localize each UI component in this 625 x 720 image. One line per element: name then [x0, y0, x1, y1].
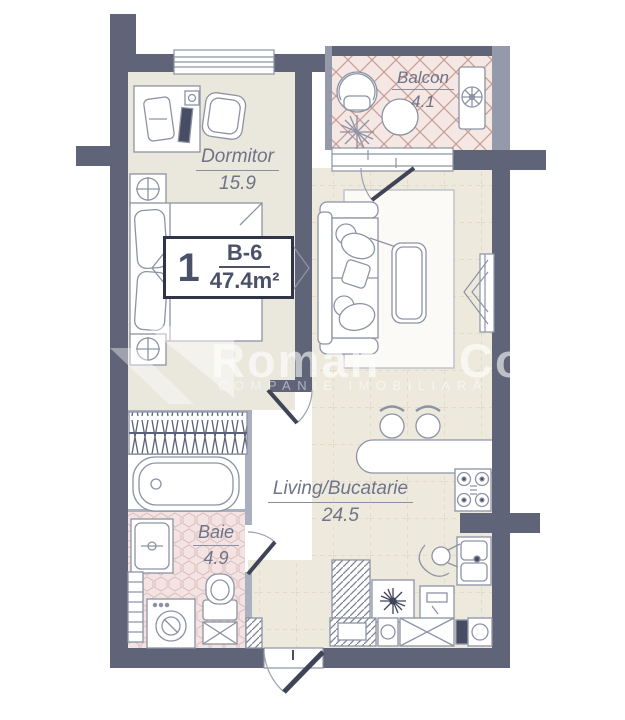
coffee-table	[392, 243, 426, 323]
washing-machine	[147, 599, 195, 648]
window-balcony-sill	[332, 148, 453, 171]
room-name: Baie	[193, 522, 239, 546]
room-name: Balcon	[392, 68, 454, 90]
bar-counter	[357, 440, 492, 473]
appliance-box	[420, 586, 454, 620]
wall-bottom-right	[323, 648, 510, 668]
unit-area: 47.4m²	[210, 268, 280, 294]
wardrobe	[129, 412, 247, 454]
room-area: 15.9	[185, 173, 290, 196]
room-label-balcon: Balcon 4.1	[378, 68, 468, 113]
room-label-dormitor: Dormitor 15.9	[185, 146, 290, 196]
wall-balcony-top	[332, 46, 492, 56]
towel-radiator	[128, 572, 143, 642]
wall-right-tab-low	[460, 513, 540, 533]
wall-bedroom-cap	[270, 380, 312, 392]
unit-code: B-6	[219, 241, 270, 268]
wall-top-right	[274, 54, 332, 72]
room-area: 24.5	[258, 505, 423, 528]
nightstand-bottom	[130, 334, 166, 365]
wall-left	[110, 54, 128, 666]
floor-plan: Dormitor 15.9 Balcon 4.1 Living/Bucatari…	[0, 0, 625, 720]
nightstand-top	[130, 174, 166, 205]
room-label-living: Living/Bucatarie 24.5	[258, 478, 423, 528]
desk-chair	[201, 91, 247, 140]
hall-closet	[332, 560, 370, 622]
bath-sink	[131, 519, 173, 573]
wall-bottom-left	[110, 648, 264, 668]
room-area: 4.1	[378, 92, 468, 112]
balcony-chair	[337, 72, 377, 112]
room-name: Living/Bucatarie	[268, 478, 413, 503]
floor-plan-drawing	[0, 0, 625, 720]
wall-balcony-left	[325, 46, 332, 150]
unit-count: 1	[178, 248, 200, 288]
stove	[455, 469, 491, 511]
room-name: Dormitor	[196, 146, 279, 171]
balcony-plant	[340, 115, 374, 149]
room-label-baie: Baie 4.9	[182, 522, 250, 569]
wall-balcony-right	[492, 46, 510, 150]
wall-left-tab	[76, 146, 128, 166]
desk	[134, 86, 200, 152]
bathtub	[133, 457, 239, 511]
door-entry	[264, 648, 323, 692]
wall-top-stub	[110, 14, 136, 56]
room-area: 4.9	[182, 548, 250, 570]
kitchen-sink	[457, 537, 491, 585]
decor-plant	[372, 580, 414, 622]
window-bedroom	[174, 50, 274, 74]
toilet	[203, 574, 237, 644]
unit-badge: 1 B-6 47.4m²	[163, 236, 294, 299]
wall-bedroom-right	[295, 72, 312, 382]
wall-right	[492, 150, 510, 666]
